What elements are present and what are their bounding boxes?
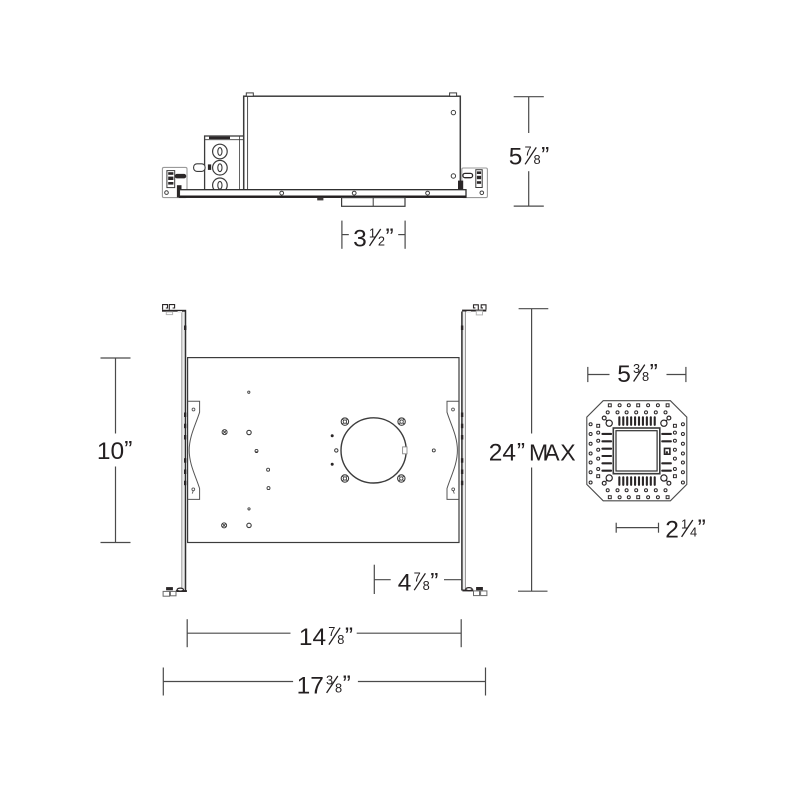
svg-text:4: 4 (690, 525, 697, 540)
svg-text:X: X (560, 440, 575, 466)
svg-text:”: ” (650, 360, 658, 387)
svg-text:5: 5 (617, 361, 631, 388)
svg-text:5: 5 (509, 144, 523, 171)
svg-text:”: ” (343, 671, 351, 698)
svg-text:2: 2 (378, 234, 385, 249)
svg-text:”: ” (541, 143, 549, 170)
svg-text:”: ” (386, 224, 394, 251)
svg-text:10: 10 (97, 438, 124, 465)
svg-text:A: A (544, 440, 560, 466)
svg-text:4: 4 (398, 570, 412, 597)
svg-text:3: 3 (353, 225, 367, 252)
svg-text:8: 8 (534, 152, 541, 167)
svg-text:”: ” (124, 437, 132, 464)
svg-text:”: ” (345, 623, 353, 650)
svg-text:2: 2 (665, 516, 679, 543)
svg-text:24: 24 (489, 440, 516, 467)
svg-text:8: 8 (337, 632, 344, 647)
svg-text:17: 17 (297, 672, 324, 699)
svg-text:14: 14 (299, 624, 326, 651)
svg-text:8: 8 (642, 369, 649, 384)
svg-text:8: 8 (423, 578, 430, 593)
svg-text:”: ” (517, 438, 525, 465)
svg-text:”: ” (698, 515, 706, 542)
svg-text:”: ” (430, 568, 438, 595)
svg-text:8: 8 (335, 681, 342, 696)
